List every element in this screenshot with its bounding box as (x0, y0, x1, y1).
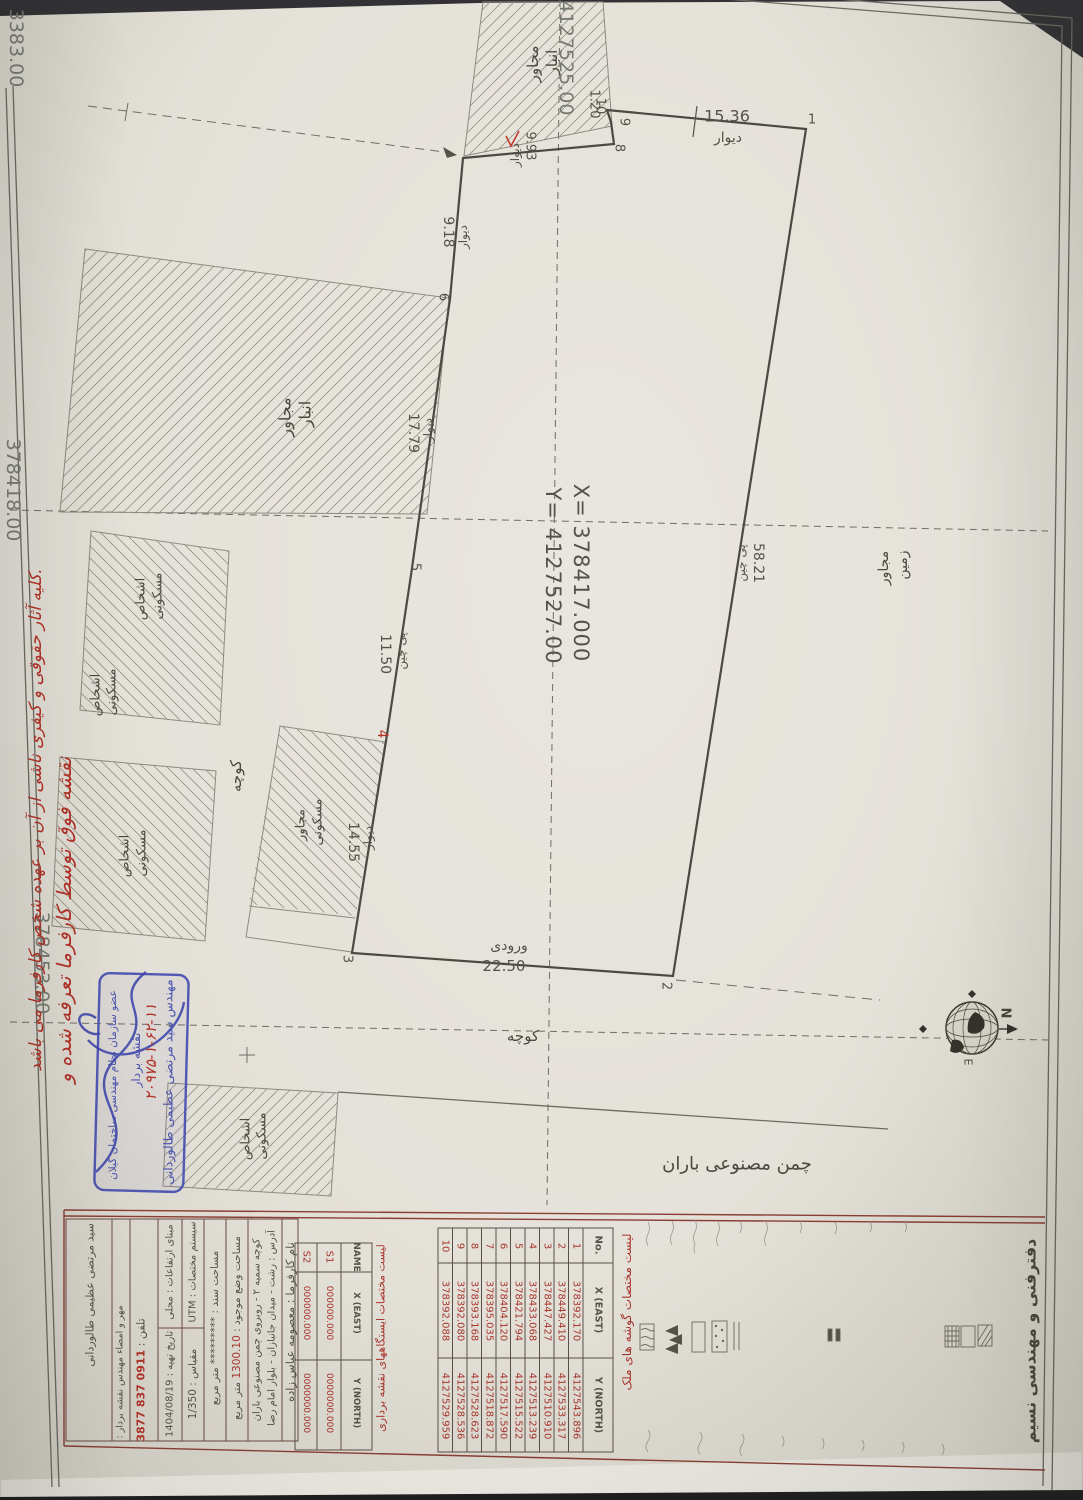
paper-sheet (0, 0, 1083, 1500)
photographed-survey-map: 3383.00 4127525.00 378418.00 378453.00 X… (0, 0, 1083, 1500)
